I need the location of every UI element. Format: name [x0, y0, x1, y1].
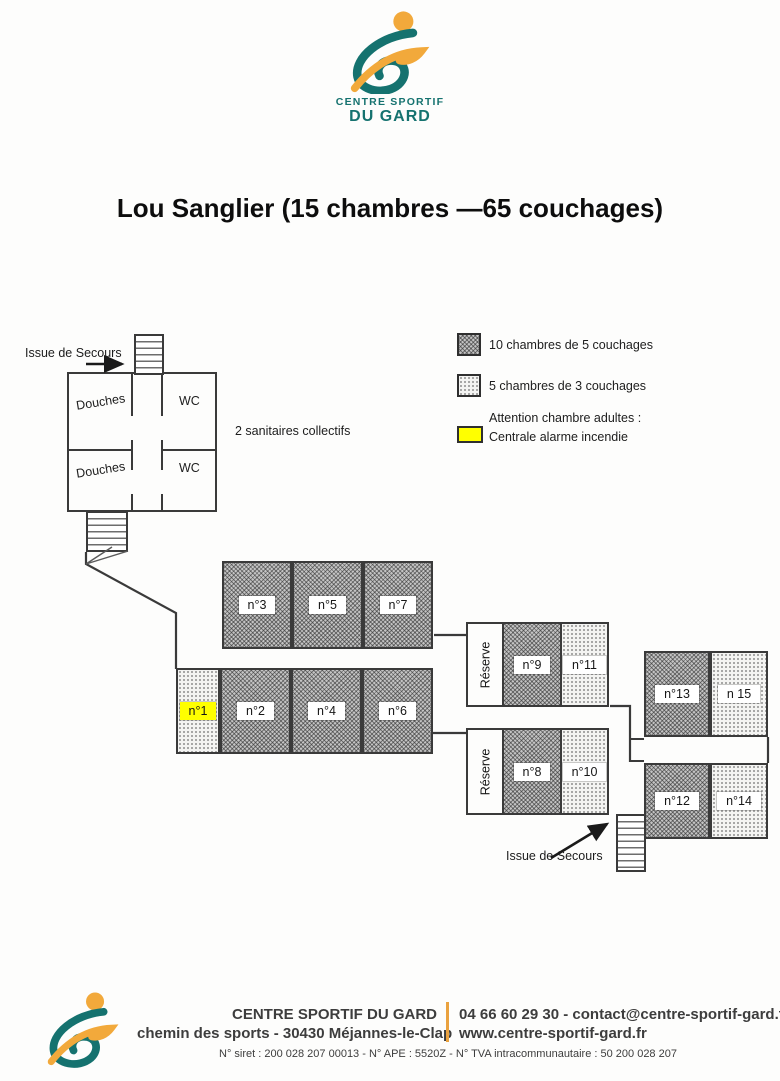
wall — [131, 440, 133, 470]
footer-website: www.centre-sportif-gard.fr — [459, 1025, 647, 1042]
room-n8-label: n°8 — [514, 763, 551, 781]
legend-swatch-light-dots — [457, 374, 481, 397]
wall-diagonal — [86, 552, 176, 669]
wall-connector — [610, 706, 630, 762]
reserve-bottom-label: Réserve — [478, 748, 492, 795]
room-n12: n°12 — [644, 763, 710, 839]
room-n13: n°13 — [644, 651, 710, 737]
room-n6: n°6 — [362, 668, 433, 754]
wall — [161, 372, 163, 416]
room-n3: n°3 — [222, 561, 292, 649]
room-reserve-top: Réserve — [466, 622, 504, 707]
scanned-floor-plan-page: CENTRE SPORTIF DU GARD Lou Sanglier (15 … — [0, 0, 780, 1081]
centre-sportif-logo-icon — [342, 10, 438, 94]
wall — [131, 494, 133, 512]
legend-swatch-yellow-alarm — [457, 426, 483, 443]
wall — [161, 440, 163, 470]
legend-swatch-dark-hatch — [457, 333, 481, 356]
legend-label-yellow-line2: Centrale alarme incendie — [489, 430, 628, 444]
wall — [161, 449, 217, 451]
room-n15-label: n 15 — [718, 685, 760, 703]
legend-label-dark: 10 chambres de 5 couchages — [489, 338, 653, 352]
room-n11-label: n°11 — [563, 656, 606, 674]
staircase-top — [134, 334, 164, 375]
room-n1: n°1 — [176, 668, 220, 754]
room-n1-label: n°1 — [180, 702, 217, 720]
wall — [67, 449, 131, 451]
room-n13-label: n°13 — [655, 685, 699, 703]
room-wc-bottom-label: WC — [179, 461, 200, 475]
room-n9-label: n°9 — [514, 656, 551, 674]
footer-divider — [446, 1002, 449, 1042]
exit-top-label: Issue de Secours — [25, 346, 122, 360]
room-n11: n°11 — [560, 622, 609, 707]
footer-phone-email: 04 66 60 29 30 - contact@centre-sportif-… — [459, 1006, 780, 1023]
room-reserve-bottom: Réserve — [466, 728, 504, 815]
sanitaires-note: 2 sanitaires collectifs — [235, 424, 350, 438]
room-n3-label: n°3 — [239, 596, 276, 614]
room-n4: n°4 — [291, 668, 362, 754]
room-n4-label: n°4 — [308, 702, 345, 720]
staircase-bottom — [616, 814, 646, 872]
room-n10: n°10 — [560, 728, 609, 815]
sanitary-block — [67, 372, 217, 512]
wall — [161, 494, 163, 512]
reserve-top-label: Réserve — [478, 641, 492, 688]
room-n14: n°14 — [710, 763, 768, 839]
header-logo: CENTRE SPORTIF DU GARD — [0, 10, 780, 126]
page-title: Lou Sanglier (15 chambres —65 couchages) — [0, 193, 780, 224]
staircase-middle — [86, 511, 128, 552]
room-n8: n°8 — [502, 728, 562, 815]
room-n7-label: n°7 — [380, 596, 417, 614]
wall — [131, 372, 133, 416]
legend-label-yellow-line1: Attention chambre adultes : — [489, 411, 641, 425]
legend-label-light: 5 chambres de 3 couchages — [489, 379, 646, 393]
room-n2-label: n°2 — [237, 702, 274, 720]
room-n5-label: n°5 — [309, 596, 346, 614]
footer-address: chemin des sports - 30430 Méjannes-le-Cl… — [137, 1025, 437, 1042]
room-n10-label: n°10 — [563, 763, 607, 781]
room-n12-label: n°12 — [655, 792, 699, 810]
logo-text-line1: CENTRE SPORTIF — [0, 96, 780, 108]
room-n5: n°5 — [292, 561, 363, 649]
exit-bottom-label: Issue de Secours — [506, 849, 603, 863]
footer-legal-line: N° siret : 200 028 207 00013 - N° APE : … — [120, 1048, 776, 1060]
footer-org-name: CENTRE SPORTIF DU GARD — [137, 1006, 437, 1023]
room-wc-top-label: WC — [179, 394, 200, 408]
room-n15: n 15 — [710, 651, 768, 737]
room-n2: n°2 — [220, 668, 291, 754]
room-n7: n°7 — [363, 561, 433, 649]
room-n9: n°9 — [502, 622, 562, 707]
logo-text-line2: DU GARD — [0, 108, 780, 126]
room-n14-label: n°14 — [717, 792, 761, 810]
footer-logo-icon — [40, 988, 126, 1070]
room-n6-label: n°6 — [379, 702, 416, 720]
